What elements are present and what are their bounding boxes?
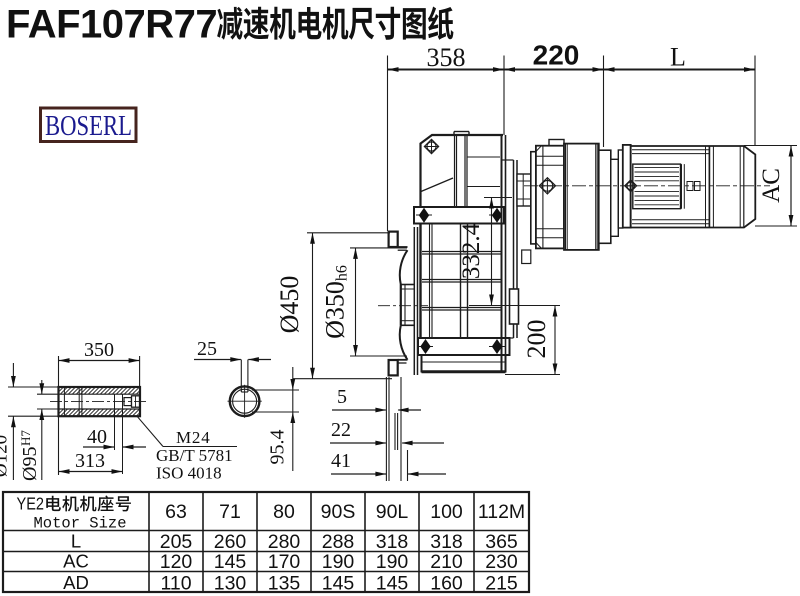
svg-text:22: 22: [331, 419, 351, 441]
svg-text:ISO 4018: ISO 4018: [156, 464, 222, 483]
svg-text:40: 40: [87, 426, 107, 448]
svg-text:41: 41: [331, 450, 351, 472]
svg-text:365: 365: [485, 531, 518, 553]
svg-text:288: 288: [322, 531, 355, 553]
svg-text:120: 120: [160, 551, 193, 573]
svg-text:313: 313: [75, 450, 105, 472]
svg-text:90L: 90L: [376, 501, 409, 523]
svg-text:25: 25: [197, 338, 217, 360]
svg-text:160: 160: [430, 573, 463, 595]
svg-text:230: 230: [485, 551, 518, 573]
svg-text:AC: AC: [758, 168, 785, 203]
svg-text:YE2: YE2: [17, 494, 45, 514]
svg-text:63: 63: [165, 501, 187, 523]
svg-text:135: 135: [268, 573, 301, 595]
svg-text:145: 145: [322, 573, 355, 595]
svg-text:112M: 112M: [478, 501, 525, 523]
svg-text:145: 145: [376, 573, 409, 595]
svg-text:100: 100: [430, 501, 463, 523]
svg-text:Ø120: Ø120: [0, 435, 12, 477]
svg-text:AD: AD: [63, 572, 89, 593]
svg-text:Ø95: Ø95: [19, 447, 41, 481]
svg-text:90S: 90S: [321, 501, 356, 523]
svg-text:Ø450: Ø450: [275, 276, 304, 334]
svg-text:332.4: 332.4: [458, 222, 485, 279]
svg-text:318: 318: [376, 531, 409, 553]
svg-text:190: 190: [322, 551, 355, 573]
svg-text:110: 110: [160, 573, 191, 595]
svg-text:GB/T 5781: GB/T 5781: [156, 446, 233, 465]
svg-text:205: 205: [160, 531, 193, 553]
svg-text:BOSERL: BOSERL: [45, 110, 132, 142]
svg-text:280: 280: [268, 531, 301, 553]
svg-text:80: 80: [273, 501, 295, 523]
svg-text:210: 210: [430, 551, 463, 573]
svg-text:95.4: 95.4: [267, 430, 289, 465]
svg-text:215: 215: [485, 573, 518, 595]
svg-text:200: 200: [522, 320, 551, 359]
svg-text:145: 145: [214, 551, 247, 573]
svg-text:71: 71: [219, 501, 241, 523]
svg-text:L: L: [71, 531, 81, 552]
svg-text:L: L: [670, 43, 686, 72]
svg-text:190: 190: [376, 551, 409, 573]
svg-text:AC: AC: [63, 551, 89, 572]
svg-text:170: 170: [268, 551, 301, 573]
svg-text:318: 318: [430, 531, 463, 553]
svg-text:358: 358: [427, 43, 466, 72]
svg-text:130: 130: [214, 573, 247, 595]
svg-text:350: 350: [84, 339, 114, 361]
svg-text:M24: M24: [176, 428, 211, 447]
svg-text:220: 220: [533, 40, 580, 71]
svg-text:260: 260: [214, 531, 247, 553]
svg-text:FAF107R77: FAF107R77: [6, 3, 217, 47]
svg-text:5: 5: [337, 386, 347, 408]
svg-text:H7: H7: [18, 430, 33, 446]
